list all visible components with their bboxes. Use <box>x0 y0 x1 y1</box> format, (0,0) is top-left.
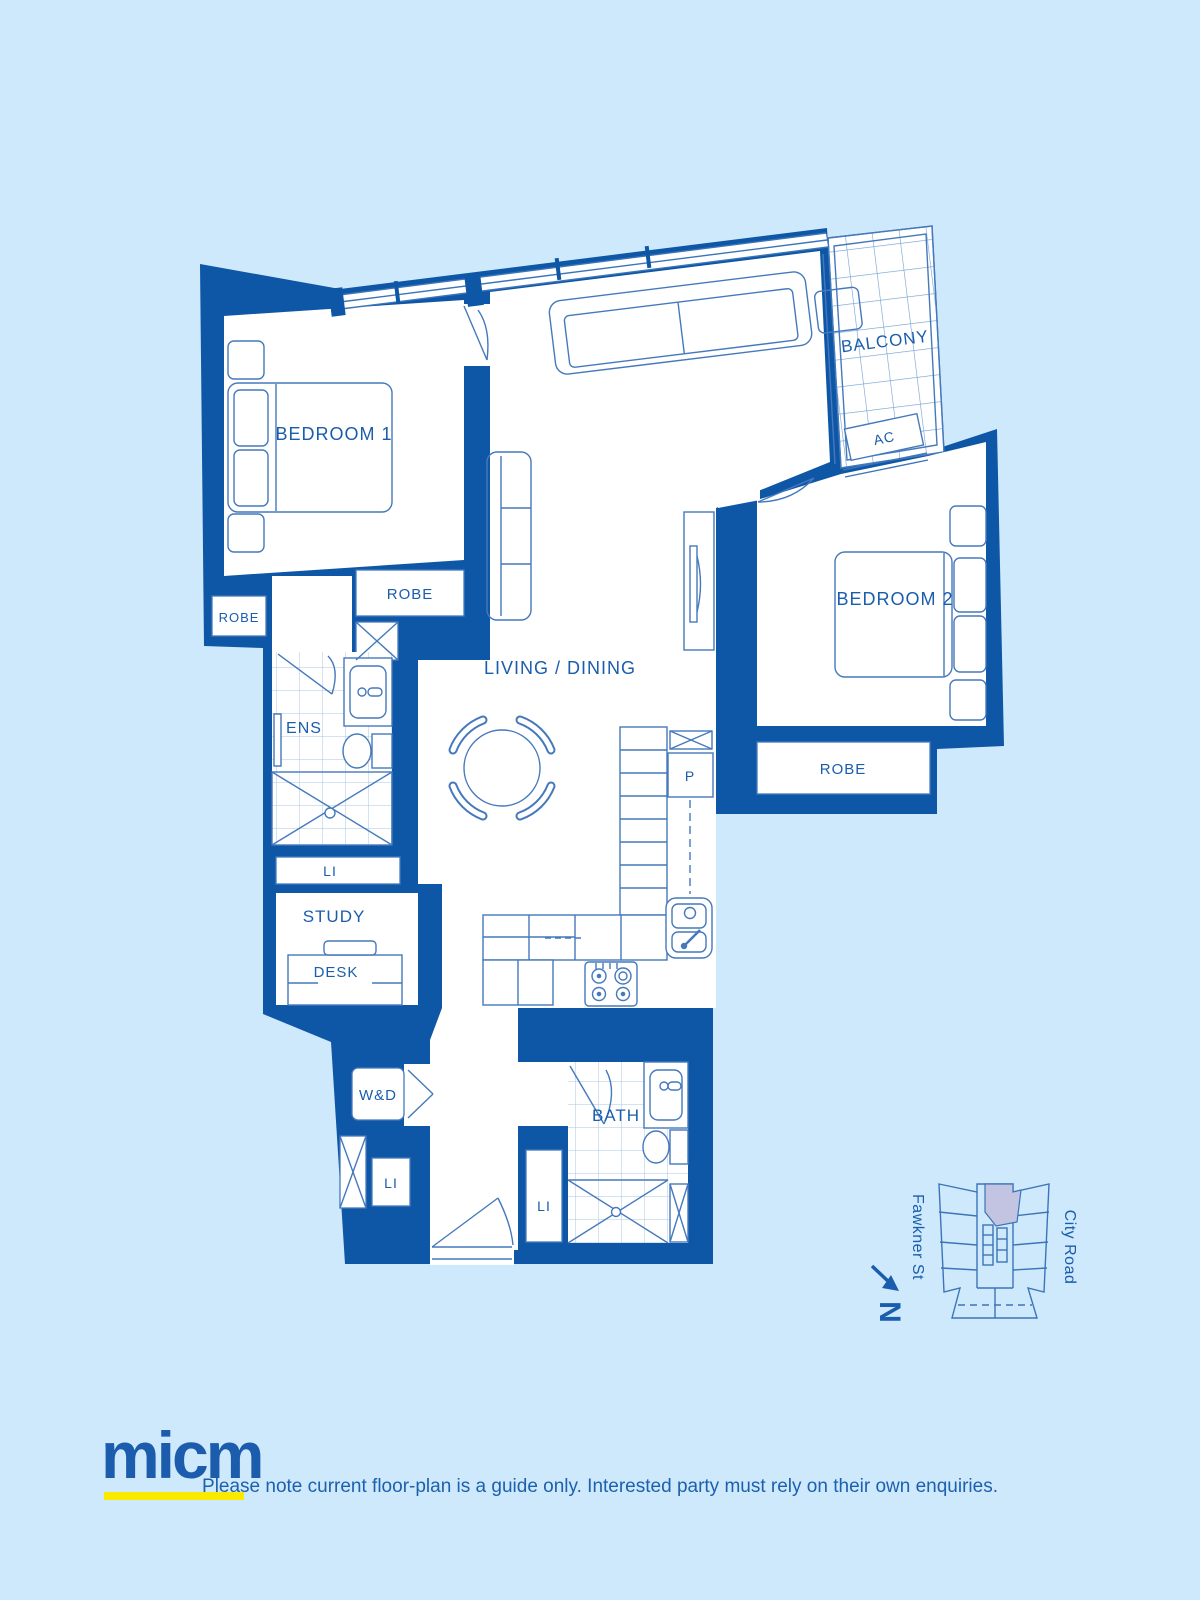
washer-dryer-label: W&D <box>359 1087 397 1104</box>
duct-box-kitchen <box>670 731 712 749</box>
keyplan: Fawkner St City Road N <box>872 1184 1078 1323</box>
kitchen-sink <box>666 898 712 958</box>
north-arrow-icon <box>872 1266 899 1291</box>
street-left-label: Fawkner St <box>909 1194 926 1280</box>
linen-hall-box <box>276 857 400 884</box>
ens-hall <box>272 576 352 654</box>
linen-entry-label: LI <box>384 1175 398 1191</box>
linen-bath-label: LI <box>537 1198 551 1214</box>
stove <box>585 962 637 1006</box>
living-dining-label: LIVING / DINING <box>484 658 636 678</box>
duct-box-bath <box>670 1184 688 1242</box>
desk-label: DESK <box>314 964 359 981</box>
floorplan-page: BEDROOM 1 BEDROOM 2 LIVING / DINING BALC… <box>0 0 1200 1600</box>
robe-bedroom1-label: ROBE <box>387 586 434 603</box>
pantry-label: P <box>685 768 695 784</box>
bath-label: BATH <box>592 1106 640 1125</box>
linen-hall-label: LI <box>323 863 337 879</box>
bedroom1-label: BEDROOM 1 <box>275 424 392 444</box>
street-right-label: City Road <box>1061 1210 1078 1285</box>
disclaimer-text: Please note current floor-plan is a guid… <box>95 1476 1105 1498</box>
bedroom2-label: BEDROOM 2 <box>836 589 953 609</box>
keyplan-highlight-unit <box>985 1184 1021 1226</box>
study-label: STUDY <box>303 907 366 926</box>
bath-door-opening <box>516 1062 572 1126</box>
north-label: N <box>873 1301 906 1323</box>
tv-unit <box>684 512 714 650</box>
robe-left-label: ROBE <box>219 610 260 625</box>
ens-label: ENS <box>286 720 322 737</box>
floorplan-svg: BEDROOM 1 BEDROOM 2 LIVING / DINING BALC… <box>0 0 1200 1600</box>
robe-bedroom2-label: ROBE <box>820 761 867 778</box>
linen-bath-box <box>526 1150 562 1242</box>
